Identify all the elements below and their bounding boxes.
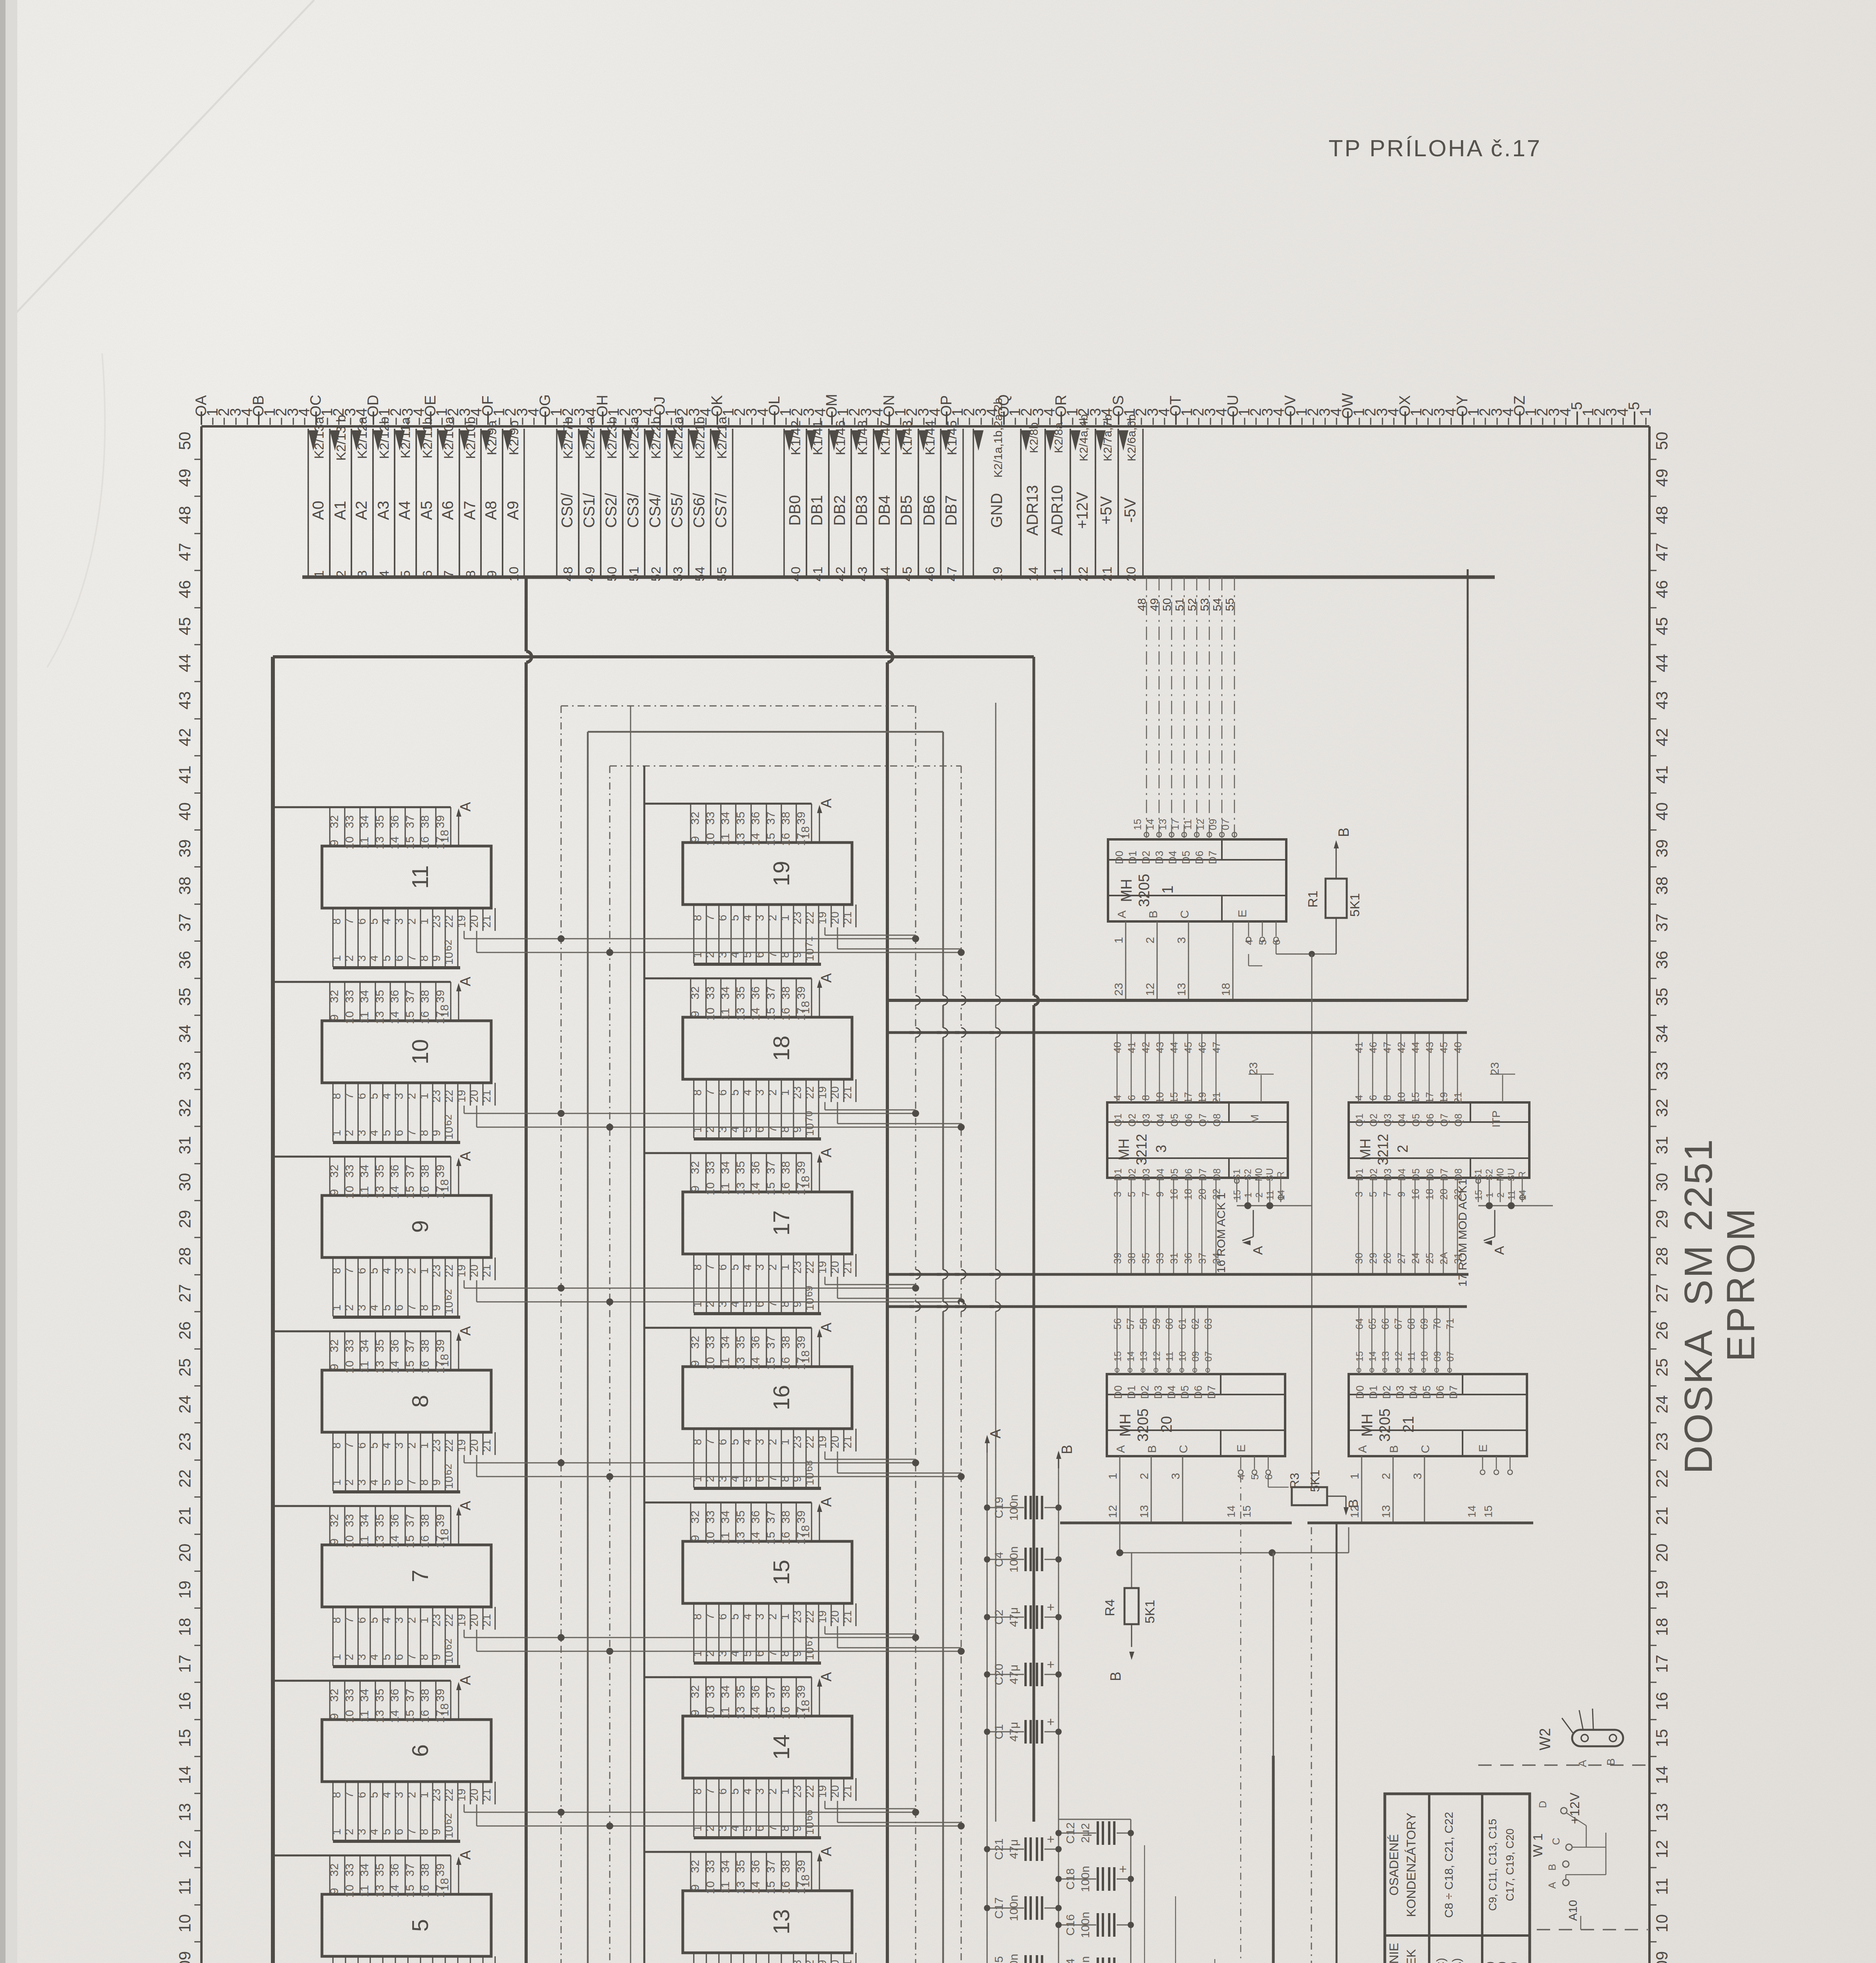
svg-text:B: B — [1387, 1445, 1400, 1453]
svg-text:13: 13 — [373, 1011, 386, 1024]
svg-text:D: D — [1537, 1801, 1549, 1808]
svg-text:C4: C4 — [992, 1552, 1005, 1567]
svg-text:15: 15 — [403, 1360, 416, 1373]
svg-text:16 ROM ACK 1: 16 ROM ACK 1 — [1214, 1192, 1227, 1273]
svg-text:C21: C21 — [992, 1838, 1005, 1860]
svg-text:6: 6 — [355, 1442, 368, 1449]
svg-text:16: 16 — [1653, 1692, 1671, 1711]
svg-text:21: 21 — [1400, 1416, 1417, 1433]
svg-text:70: 70 — [1431, 1318, 1443, 1330]
svg-text:CS6/: CS6/ — [690, 493, 708, 528]
svg-text:37: 37 — [1653, 914, 1671, 932]
svg-text:K2/23b: K2/23b — [604, 417, 619, 459]
svg-text:8: 8 — [1140, 1095, 1152, 1100]
svg-text:11: 11 — [719, 1357, 731, 1369]
svg-text:18: 18 — [176, 1618, 194, 1636]
svg-text:7: 7 — [405, 1829, 418, 1835]
svg-text:39: 39 — [1653, 839, 1671, 858]
svg-text:39: 39 — [1112, 1253, 1123, 1264]
svg-text:3: 3 — [753, 1264, 766, 1270]
svg-text:D1: D1 — [1354, 1168, 1365, 1181]
svg-text:22: 22 — [176, 1470, 194, 1488]
svg-text:C: C — [1550, 1838, 1562, 1845]
svg-text:45: 45 — [900, 567, 914, 581]
svg-text:15: 15 — [1354, 1351, 1365, 1362]
svg-text:46: 46 — [1653, 580, 1671, 599]
svg-text:35: 35 — [373, 1514, 386, 1527]
svg-text:27: 27 — [176, 1284, 194, 1303]
svg-text:32: 32 — [327, 1514, 340, 1527]
svg-text:18: 18 — [1653, 1618, 1671, 1636]
svg-text:2: 2 — [343, 1479, 355, 1486]
svg-text:59: 59 — [1150, 1318, 1162, 1330]
svg-text:K2/13a: K2/13a — [311, 417, 326, 459]
svg-text:15: 15 — [764, 1007, 777, 1020]
svg-text:18: 18 — [799, 1525, 812, 1538]
svg-text:D0: D0 — [1112, 1385, 1124, 1399]
svg-text:C15: C15 — [992, 1956, 1005, 1963]
svg-text:28: 28 — [176, 1247, 194, 1266]
svg-text:6: 6 — [393, 1130, 405, 1136]
svg-text:9: 9 — [688, 1011, 701, 1018]
svg-text:50: 50 — [176, 432, 194, 450]
svg-text:22: 22 — [442, 1265, 455, 1277]
svg-text:+12V: +12V — [1567, 1793, 1582, 1824]
svg-text:DB3: DB3 — [853, 495, 870, 526]
svg-text:47μ: 47μ — [1007, 1839, 1020, 1859]
svg-text:3: 3 — [1175, 937, 1188, 944]
svg-text:21: 21 — [1099, 567, 1114, 581]
svg-text:35: 35 — [373, 1689, 386, 1702]
svg-text:C12: C12 — [1064, 1822, 1077, 1844]
svg-text:10: 10 — [442, 1826, 455, 1838]
svg-text:+5V: +5V — [1097, 496, 1115, 525]
svg-text:55: 55 — [1223, 598, 1236, 611]
svg-text:33: 33 — [343, 815, 356, 828]
svg-text:D4: D4 — [1396, 1168, 1407, 1181]
svg-text:15: 15 — [764, 1357, 777, 1370]
svg-text:37: 37 — [403, 1689, 416, 1702]
svg-text:7: 7 — [704, 1439, 716, 1445]
svg-text:13: 13 — [1138, 1351, 1149, 1362]
svg-text:13: 13 — [1175, 983, 1188, 996]
svg-text:8: 8 — [330, 1268, 343, 1274]
svg-text:13: 13 — [734, 1881, 747, 1894]
svg-text:32: 32 — [176, 1099, 194, 1117]
svg-text:D6: D6 — [1434, 1385, 1446, 1399]
svg-text:27: 27 — [1395, 1253, 1407, 1264]
svg-text:2μ2: 2μ2 — [1079, 1823, 1092, 1843]
svg-text:W2 (D-A): W2 (D-A) — [1496, 1961, 1507, 1963]
svg-text:44: 44 — [1168, 1042, 1180, 1053]
svg-text:D3: D3 — [1152, 1385, 1164, 1399]
svg-text:2: 2 — [343, 955, 355, 961]
svg-text:MH: MH — [1118, 879, 1135, 902]
svg-text:5: 5 — [380, 1305, 393, 1311]
svg-text:6: 6 — [355, 1268, 368, 1274]
svg-text:14: 14 — [388, 1535, 401, 1548]
svg-text:10: 10 — [803, 1298, 816, 1310]
svg-text:23: 23 — [791, 1610, 803, 1623]
svg-text:32: 32 — [688, 1685, 701, 1698]
svg-text:D6: D6 — [1424, 1168, 1435, 1181]
svg-text:35: 35 — [1140, 1253, 1152, 1264]
svg-text:C8 ÷ C18, C21, C22: C8 ÷ C18, C21, C22 — [1442, 1812, 1455, 1918]
svg-text:A3: A3 — [375, 501, 392, 520]
svg-text:28: 28 — [1653, 1247, 1671, 1266]
svg-text:21: 21 — [841, 1086, 854, 1099]
svg-text:A: A — [818, 1672, 834, 1682]
svg-text:100n: 100n — [1079, 1956, 1092, 1963]
svg-text:8: 8 — [330, 1792, 343, 1798]
svg-text:9: 9 — [327, 1364, 340, 1371]
svg-text:40: 40 — [176, 802, 194, 821]
svg-text:D6: D6 — [1192, 1385, 1204, 1399]
svg-text:10: 10 — [442, 1301, 455, 1314]
svg-text:37: 37 — [403, 1339, 416, 1352]
svg-text:7: 7 — [441, 570, 456, 578]
svg-text:14: 14 — [749, 1357, 762, 1370]
svg-text:62: 62 — [442, 1813, 454, 1825]
svg-text:A: A — [818, 973, 834, 983]
svg-text:8: 8 — [691, 1614, 704, 1620]
svg-text:36: 36 — [388, 1164, 401, 1177]
svg-text:K2/21b: K2/21b — [692, 417, 707, 459]
svg-text:34: 34 — [358, 1339, 371, 1352]
svg-text:C: C — [1419, 1445, 1432, 1453]
svg-text:20: 20 — [1653, 1544, 1671, 1562]
svg-text:36: 36 — [388, 1514, 401, 1527]
svg-text:49: 49 — [176, 469, 194, 487]
svg-text:22: 22 — [1075, 567, 1090, 581]
svg-text:7: 7 — [704, 915, 716, 921]
svg-text:23: 23 — [176, 1433, 194, 1451]
svg-text:13: 13 — [734, 1706, 747, 1719]
svg-text:35: 35 — [373, 1339, 386, 1352]
svg-text:4: 4 — [380, 1442, 393, 1449]
svg-text:6: 6 — [716, 1264, 729, 1270]
svg-text:33: 33 — [704, 1336, 717, 1349]
svg-text:39: 39 — [176, 839, 194, 858]
svg-text:4: 4 — [377, 570, 391, 578]
svg-text:20: 20 — [468, 915, 480, 928]
svg-text:6: 6 — [355, 918, 368, 925]
svg-text:5: 5 — [368, 1093, 380, 1099]
svg-text:D3: D3 — [1382, 1168, 1393, 1181]
svg-text:14: 14 — [749, 833, 762, 846]
svg-text:44: 44 — [878, 567, 892, 581]
svg-text:1: 1 — [1637, 408, 1654, 416]
svg-text:C20: C20 — [992, 1663, 1005, 1685]
svg-text:MH: MH — [1357, 1139, 1373, 1161]
svg-text:7: 7 — [704, 1089, 716, 1096]
svg-text:A: A — [818, 1323, 834, 1332]
svg-text:15: 15 — [1473, 1190, 1484, 1201]
svg-text:36: 36 — [749, 1685, 762, 1698]
svg-text:68: 68 — [803, 1460, 815, 1472]
svg-text:3: 3 — [393, 1792, 405, 1798]
svg-text:3: 3 — [1112, 1192, 1123, 1197]
svg-text:2: 2 — [1137, 1473, 1150, 1480]
svg-text:9: 9 — [1154, 1192, 1166, 1197]
svg-text:9: 9 — [430, 1829, 442, 1835]
svg-text:38: 38 — [779, 1685, 792, 1698]
svg-text:4: 4 — [368, 1305, 380, 1311]
svg-text:51: 51 — [626, 567, 641, 581]
svg-text:8: 8 — [330, 1442, 343, 1449]
svg-text:16: 16 — [1410, 1189, 1421, 1200]
svg-text:26: 26 — [1653, 1321, 1671, 1340]
svg-text:15: 15 — [764, 833, 777, 846]
svg-text:1: 1 — [418, 1442, 430, 1449]
svg-text:9: 9 — [688, 1535, 701, 1542]
svg-text:54: 54 — [1210, 598, 1223, 611]
svg-text:33: 33 — [343, 1164, 356, 1177]
svg-text:1: 1 — [330, 1305, 343, 1311]
svg-text:A: A — [1250, 1246, 1265, 1255]
svg-text:5: 5 — [1249, 1474, 1261, 1480]
svg-text:8: 8 — [691, 1788, 704, 1795]
svg-text:21: 21 — [480, 1439, 493, 1452]
svg-text:21: 21 — [176, 1507, 194, 1525]
svg-text:1: 1 — [418, 1617, 430, 1623]
svg-text:37: 37 — [764, 1161, 777, 1174]
svg-text:23: 23 — [791, 1261, 803, 1274]
svg-text:3: 3 — [393, 1442, 405, 1449]
svg-text:10: 10 — [343, 1710, 356, 1723]
svg-text:35: 35 — [373, 815, 386, 828]
svg-text:C1: C1 — [992, 1724, 1005, 1739]
svg-text:37: 37 — [764, 986, 777, 999]
svg-text:D7: D7 — [1206, 1385, 1218, 1399]
svg-text:39: 39 — [794, 1161, 807, 1174]
svg-text:7: 7 — [405, 1654, 418, 1660]
svg-text:34: 34 — [176, 1025, 194, 1043]
svg-text:A10: A10 — [1566, 1900, 1579, 1921]
svg-text:20: 20 — [828, 912, 841, 924]
svg-text:6: 6 — [393, 1829, 405, 1835]
svg-text:37: 37 — [403, 1514, 416, 1527]
svg-text:32: 32 — [327, 1339, 340, 1352]
svg-text:19: 19 — [816, 1261, 828, 1274]
svg-text:7: 7 — [343, 1617, 355, 1623]
svg-text:3212: 3212 — [1134, 1134, 1150, 1165]
svg-text:14: 14 — [749, 1182, 762, 1195]
svg-text:11: 11 — [1182, 819, 1194, 830]
svg-text:D5: D5 — [1421, 1385, 1433, 1399]
svg-text:18: 18 — [438, 1703, 451, 1716]
svg-text:K2/8b: K2/8b — [1027, 422, 1040, 453]
svg-text:ADR13: ADR13 — [1024, 485, 1041, 536]
svg-text:20: 20 — [1158, 1416, 1175, 1433]
svg-text:22: 22 — [803, 1610, 816, 1623]
svg-text:17: 17 — [176, 1655, 194, 1673]
svg-text:B: B — [1108, 1672, 1124, 1681]
svg-text:1: 1 — [1106, 1473, 1119, 1480]
svg-text:67: 67 — [1392, 1318, 1404, 1330]
svg-text:6: 6 — [355, 1617, 368, 1623]
svg-text:17: 17 — [768, 1210, 794, 1236]
svg-text:-5V: -5V — [1121, 498, 1139, 523]
svg-text:2: 2 — [405, 918, 418, 925]
svg-text:D4: D4 — [1167, 851, 1179, 865]
svg-text:6: 6 — [393, 1479, 405, 1486]
svg-text:10: 10 — [343, 1535, 356, 1548]
svg-text:5: 5 — [368, 1617, 380, 1623]
svg-text:D1: D1 — [1127, 851, 1139, 865]
svg-text:3: 3 — [393, 1093, 405, 1099]
svg-text:D6: D6 — [1194, 851, 1205, 865]
svg-text:K2/9b: K2/9b — [506, 420, 521, 455]
svg-text:10: 10 — [704, 1182, 717, 1195]
svg-text:ITP: ITP — [1490, 1110, 1502, 1128]
svg-text:18: 18 — [438, 1528, 451, 1541]
svg-text:47: 47 — [1381, 1042, 1393, 1053]
svg-text:11: 11 — [358, 1011, 371, 1024]
svg-text:1: 1 — [1348, 1473, 1361, 1480]
svg-text:20: 20 — [468, 1090, 480, 1102]
svg-text:41: 41 — [176, 766, 194, 784]
svg-text:12: 12 — [1106, 1505, 1119, 1518]
svg-text:1: 1 — [418, 918, 430, 925]
svg-text:11: 11 — [358, 1535, 371, 1548]
svg-text:47μ: 47μ — [1007, 1607, 1020, 1627]
svg-text:15: 15 — [403, 1186, 416, 1199]
svg-text:100n: 100n — [1079, 1912, 1092, 1938]
svg-text:A0: A0 — [309, 501, 327, 520]
svg-text:1: 1 — [1243, 1192, 1253, 1197]
svg-text:12: 12 — [1653, 1840, 1671, 1859]
svg-text:D7: D7 — [1197, 1168, 1208, 1181]
svg-text:8: 8 — [1381, 1095, 1393, 1100]
svg-text:15: 15 — [1241, 1505, 1253, 1517]
svg-text:+: + — [1047, 1714, 1055, 1729]
svg-text:13: 13 — [373, 1710, 386, 1723]
svg-text:29: 29 — [176, 1210, 194, 1228]
svg-text:A: A — [457, 1850, 474, 1860]
svg-text:07: 07 — [1445, 1351, 1455, 1362]
svg-text:6: 6 — [716, 1614, 729, 1620]
svg-text:31: 31 — [1653, 1136, 1671, 1155]
svg-text:30: 30 — [1353, 1253, 1365, 1264]
svg-text:DB0: DB0 — [786, 495, 803, 526]
svg-text:2: 2 — [766, 1264, 779, 1270]
svg-text:E: E — [1236, 910, 1249, 918]
svg-text:8: 8 — [330, 1093, 343, 1099]
svg-text:46: 46 — [176, 580, 194, 599]
svg-text:10: 10 — [442, 1476, 455, 1489]
svg-text:50: 50 — [604, 567, 619, 581]
svg-text:32: 32 — [327, 990, 340, 1003]
svg-text:19: 19 — [455, 915, 468, 928]
svg-text:6: 6 — [1367, 1095, 1379, 1100]
svg-text:CS2/: CS2/ — [602, 493, 620, 528]
svg-text:22: 22 — [442, 1789, 455, 1801]
svg-text:23: 23 — [1653, 1433, 1671, 1451]
svg-text:16: 16 — [779, 833, 792, 846]
svg-text:4: 4 — [368, 1479, 380, 1486]
svg-text:32: 32 — [688, 1860, 701, 1873]
svg-text:A4: A4 — [396, 501, 413, 520]
svg-text:100n: 100n — [1007, 1895, 1020, 1921]
svg-text:W2: W2 — [1537, 1728, 1553, 1751]
svg-text:7: 7 — [343, 1093, 355, 1099]
svg-text:8: 8 — [407, 1395, 433, 1407]
svg-text:49: 49 — [1148, 598, 1161, 611]
svg-text:4: 4 — [380, 918, 393, 925]
svg-text:20: 20 — [1123, 567, 1138, 581]
svg-text:20: 20 — [828, 1785, 841, 1798]
svg-text:2: 2 — [343, 1130, 355, 1136]
svg-text:38: 38 — [1126, 1253, 1137, 1264]
svg-text:24: 24 — [1653, 1395, 1671, 1414]
svg-text:5: 5 — [728, 915, 741, 921]
svg-text:66: 66 — [803, 1810, 815, 1821]
svg-text:DB6: DB6 — [920, 495, 938, 526]
svg-text:4: 4 — [380, 1617, 393, 1623]
svg-text:43: 43 — [855, 567, 870, 581]
svg-text:9: 9 — [430, 1305, 442, 1311]
svg-text:37: 37 — [1196, 1253, 1208, 1264]
svg-text:DB5: DB5 — [898, 495, 915, 526]
svg-text:22: 22 — [442, 915, 455, 928]
svg-text:A: A — [457, 802, 474, 812]
svg-text:K2/24a: K2/24a — [582, 417, 597, 459]
svg-text:1: 1 — [779, 1614, 791, 1620]
svg-text:49: 49 — [582, 567, 597, 581]
svg-text:D1: D1 — [1112, 1168, 1123, 1181]
svg-text:36: 36 — [388, 1339, 401, 1352]
svg-text:19: 19 — [455, 1439, 468, 1452]
svg-text:W1 (A-C): W1 (A-C) — [1484, 1961, 1496, 1963]
svg-text:12: 12 — [176, 1840, 194, 1859]
svg-text:09: 09 — [1190, 1351, 1201, 1362]
svg-text:1: 1 — [779, 1439, 791, 1445]
svg-text:20: 20 — [1196, 1189, 1208, 1200]
svg-text:7: 7 — [343, 918, 355, 925]
svg-text:CS5/: CS5/ — [668, 493, 686, 528]
svg-text:37: 37 — [403, 1164, 416, 1177]
svg-text:D4: D4 — [1408, 1385, 1419, 1399]
svg-text:46: 46 — [1196, 1042, 1208, 1053]
svg-text:D2: D2 — [1140, 851, 1152, 865]
svg-text:6: 6 — [716, 1439, 729, 1445]
svg-text:14: 14 — [1125, 1351, 1136, 1362]
svg-text:37: 37 — [764, 812, 777, 824]
svg-text:36: 36 — [749, 812, 762, 824]
svg-text:R: R — [1517, 1171, 1527, 1178]
svg-text:6: 6 — [1126, 1095, 1137, 1100]
svg-text:13: 13 — [1137, 1505, 1150, 1518]
svg-text:39: 39 — [433, 1339, 446, 1352]
svg-text:33: 33 — [343, 1689, 356, 1702]
svg-text:K2/12b: K2/12b — [377, 417, 391, 459]
svg-text:37: 37 — [403, 1863, 416, 1876]
svg-text:38: 38 — [418, 1339, 431, 1352]
svg-text:1: 1 — [330, 955, 343, 961]
svg-text:Q1: Q1 — [1354, 1113, 1365, 1126]
svg-text:20: 20 — [468, 1439, 480, 1452]
svg-text:PREPOJEK: PREPOJEK — [1404, 1949, 1418, 1963]
svg-text:41: 41 — [1353, 1042, 1365, 1053]
svg-text:14: 14 — [1144, 819, 1156, 830]
svg-text:3: 3 — [393, 918, 405, 925]
svg-text:39: 39 — [433, 1164, 446, 1177]
svg-text:38: 38 — [418, 1689, 431, 1702]
svg-text:13: 13 — [373, 836, 386, 849]
svg-text:5: 5 — [368, 1792, 380, 1798]
svg-text:37: 37 — [764, 1860, 777, 1873]
